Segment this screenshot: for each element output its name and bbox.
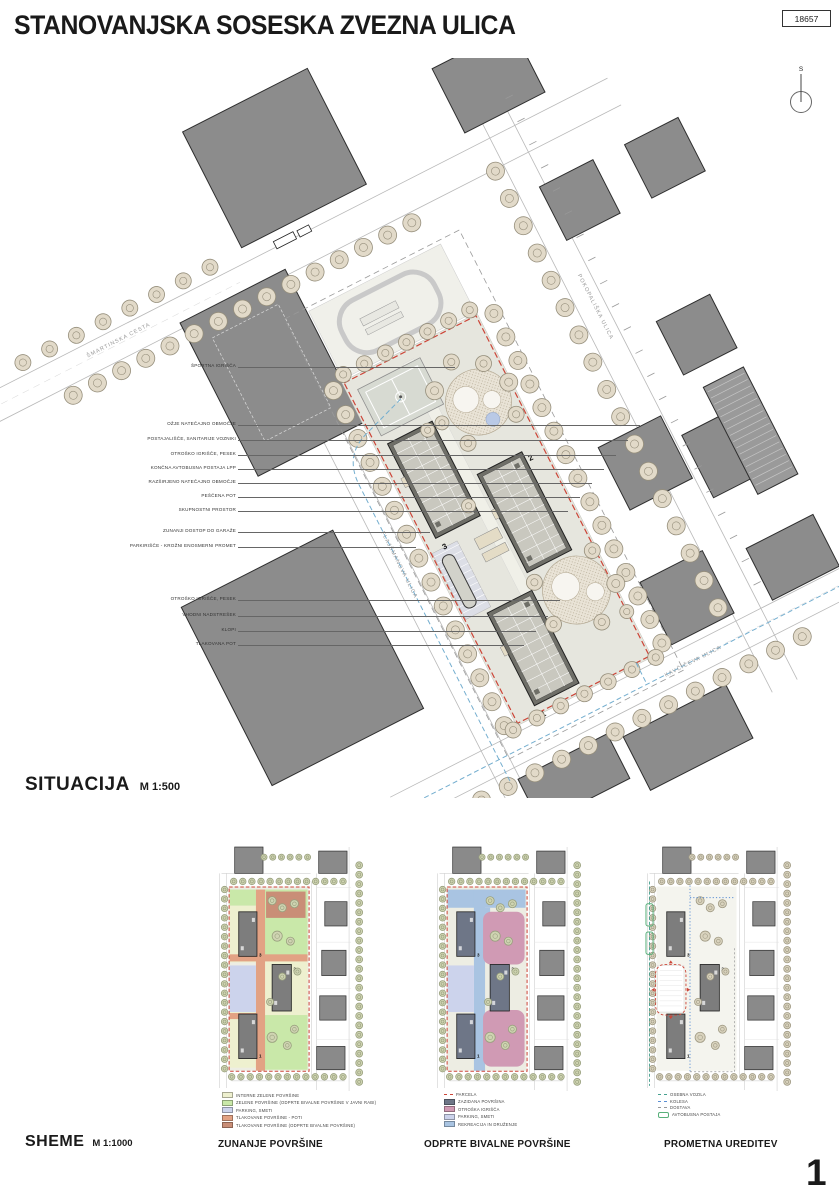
callout-11: VHODNI NADSTREŠEK bbox=[20, 611, 548, 618]
leader-line bbox=[238, 547, 416, 548]
legend-item: PARKING, SMETI bbox=[222, 1107, 407, 1113]
leader-line bbox=[238, 440, 628, 441]
callout-8: ZUNANJI DOSTOP DO GARAŽE bbox=[20, 527, 430, 534]
callout-label: ŠPORTNA IGRIŠČA bbox=[191, 363, 238, 369]
situacija-site-plan: 321 ŠMARTINSKA CESTA FLAJŠMANOVA ULICA P… bbox=[0, 58, 839, 798]
legend-swatch bbox=[222, 1092, 233, 1098]
scheme-prometna-ureditev: 321 bbox=[628, 845, 833, 1093]
legend-item: TLAKOVANE POVRŠINE - POTI bbox=[222, 1115, 407, 1121]
leader-line bbox=[238, 631, 536, 632]
situacija-label: SITUACIJA bbox=[25, 774, 130, 795]
legend-zunanje-povrsine: INTERNE ZELENE POVRŠINE ZELENE POVRŠINE … bbox=[222, 1092, 407, 1130]
page-title: STANOVANJSKA SOSESKA ZVEZNA ULICA bbox=[14, 10, 515, 41]
leader-line bbox=[238, 616, 548, 617]
sheme-caption: SHEMEM 1:1000 bbox=[25, 1133, 133, 1151]
legend-swatch bbox=[658, 1107, 667, 1108]
bus-stop-icon bbox=[297, 225, 312, 237]
callout-9: PARKIRIŠČE - KROŽNI ENOSMERNI PROMET bbox=[20, 542, 416, 549]
legend-swatch bbox=[444, 1121, 455, 1127]
legend-item: TLAKOVANE POVRŠINE (ODPRTE BIVALNE POVRŠ… bbox=[222, 1122, 407, 1128]
svg-text:1: 1 bbox=[477, 1054, 480, 1059]
callout-label: KLOPI bbox=[221, 627, 238, 633]
legend-odprte-bivalne: PARCELA ZAZIDANA POVRŠINA OTROŠKA IGRIŠČ… bbox=[444, 1092, 629, 1129]
legend-swatch bbox=[222, 1115, 233, 1121]
scheme-odprte-bivalne-povrsine: 321 bbox=[418, 845, 623, 1093]
situacija-scale: M 1:500 bbox=[140, 781, 180, 793]
competition-code-badge: 18657 bbox=[782, 10, 831, 27]
callout-label: TLAKOVANA POT bbox=[196, 641, 238, 647]
svg-text:1: 1 bbox=[259, 1054, 262, 1059]
legend-item: INTERNE ZELENE POVRŠINE bbox=[222, 1092, 407, 1098]
legend-swatch bbox=[444, 1106, 455, 1112]
callout-12: KLOPI bbox=[20, 626, 536, 633]
callout-label: RAZŠIRJENO NATEČAJNO OBMOČJE bbox=[149, 479, 238, 485]
callout-0: ŠPORTNA IGRIŠČA bbox=[20, 362, 455, 369]
leader-line bbox=[238, 497, 580, 498]
legend-item: AVTOBUSNA POSTAJA bbox=[658, 1112, 839, 1118]
sheme-label: SHEME bbox=[25, 1133, 84, 1150]
leader-line bbox=[238, 455, 616, 456]
legend-swatch bbox=[658, 1094, 667, 1095]
legend-swatch bbox=[444, 1114, 455, 1120]
callout-label: SKUPNOSTNI PROSTOR bbox=[179, 507, 238, 513]
svg-text:1: 1 bbox=[687, 1054, 690, 1059]
legend-swatch bbox=[222, 1100, 233, 1106]
legend-swatch bbox=[444, 1094, 453, 1095]
callout-label: KONČNA AVTOBUSNA POSTAJA LPP bbox=[151, 465, 238, 471]
callout-13: TLAKOVANA POT bbox=[20, 640, 524, 647]
leader-line bbox=[238, 532, 430, 533]
legend-item: PARKING, SMETI bbox=[444, 1114, 629, 1120]
callout-label: POSTAJALIŠČE, SANITARIJE VOZNIKI bbox=[147, 436, 238, 442]
scheme-title-odprte: ODPRTE BIVALNE POVRŠINE bbox=[424, 1139, 571, 1150]
legend-swatch bbox=[658, 1112, 669, 1118]
leader-line bbox=[238, 367, 455, 368]
callout-5: RAZŠIRJENO NATEČAJNO OBMOČJE bbox=[20, 478, 592, 485]
leader-line bbox=[238, 469, 604, 470]
callout-4: KONČNA AVTOBUSNA POSTAJA LPP bbox=[20, 464, 604, 471]
legend-swatch bbox=[222, 1107, 233, 1113]
legend-item: ZAZIDANA POVRŠINA bbox=[444, 1099, 629, 1105]
legend-swatch bbox=[658, 1101, 667, 1102]
legend-swatch bbox=[222, 1122, 233, 1128]
presentation-board: STANOVANJSKA SOSESKA ZVEZNA ULICA 18657 bbox=[0, 0, 839, 1200]
svg-text:3: 3 bbox=[259, 952, 262, 957]
callout-label: OTROŠKO IGRIŠČE, PESEK bbox=[171, 596, 238, 602]
legend-item: OTROŠKA IGRIŠČA bbox=[444, 1106, 629, 1112]
svg-text:S: S bbox=[799, 66, 804, 73]
scheme-title-zunanje: ZUNANJE POVRŠINE bbox=[218, 1139, 323, 1150]
callout-3: OTROŠKO IGRIŠČE, PESEK bbox=[20, 450, 616, 457]
legend-item: OSEBNA VOZILA bbox=[658, 1092, 839, 1097]
leader-line bbox=[238, 511, 568, 512]
scheme-title-prometna: PROMETNA UREDITEV bbox=[664, 1139, 778, 1150]
legend-item: REKREACIJA IN DRUŽENJE bbox=[444, 1121, 629, 1127]
callout-2: POSTAJALIŠČE, SANITARIJE VOZNIKI bbox=[20, 435, 628, 442]
callout-label: ZUNANJI DOSTOP DO GARAŽE bbox=[163, 528, 238, 534]
callout-label: PEŠČENA POT bbox=[201, 493, 238, 499]
leader-line bbox=[238, 425, 640, 426]
legend-swatch bbox=[444, 1099, 455, 1105]
callout-label: VHODNI NADSTREŠEK bbox=[182, 612, 238, 618]
legend-prometna-ureditev: OSEBNA VOZILA KOLESA DOSTAVA AVTOBUSNA P… bbox=[658, 1092, 839, 1119]
callout-7: SKUPNOSTNI PROSTOR bbox=[20, 506, 568, 513]
callout-label: PARKIRIŠČE - KROŽNI ENOSMERNI PROMET bbox=[130, 543, 238, 549]
north-arrow-icon: S bbox=[791, 66, 812, 113]
leader-line bbox=[238, 645, 524, 646]
leader-line bbox=[238, 600, 560, 601]
callout-label: OŽJE NATEČAJNO OBMOČJE bbox=[167, 421, 238, 427]
legend-item: ZELENE POVRŠINE (ODPRTE BIVALNE POVRŠINE… bbox=[222, 1100, 407, 1106]
leader-line bbox=[238, 483, 592, 484]
situacija-caption: SITUACIJAM 1:500 bbox=[25, 774, 180, 796]
legend-item: DOSTAVA bbox=[658, 1105, 839, 1110]
svg-text:3: 3 bbox=[687, 952, 690, 957]
callout-10: OTROŠKO IGRIŠČE, PESEK bbox=[20, 595, 560, 602]
legend-item: PARCELA bbox=[444, 1092, 629, 1097]
callout-6: PEŠČENA POT bbox=[20, 492, 580, 499]
callout-label: OTROŠKO IGRIŠČE, PESEK bbox=[171, 451, 238, 457]
scheme-zunanje-povrsine: 321 bbox=[200, 845, 405, 1093]
callout-1: OŽJE NATEČAJNO OBMOČJE bbox=[20, 420, 640, 427]
svg-text:3: 3 bbox=[477, 952, 480, 957]
page-number: 1 bbox=[806, 1152, 827, 1194]
legend-item: KOLESA bbox=[658, 1099, 839, 1104]
sheme-scale: M 1:1000 bbox=[92, 1138, 132, 1149]
bus-stop-icon bbox=[273, 232, 296, 249]
